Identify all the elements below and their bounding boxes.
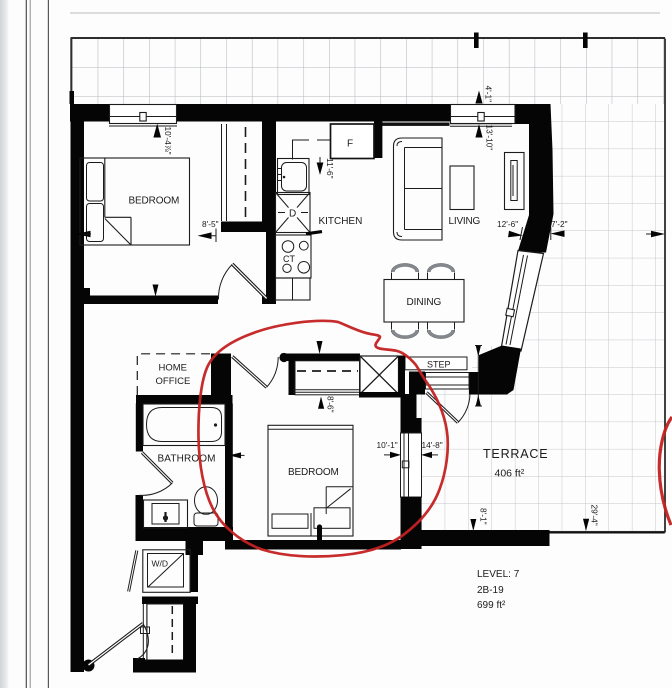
svg-text:CT: CT — [283, 254, 295, 264]
svg-text:HOME: HOME — [159, 363, 188, 374]
svg-text:699 ft²: 699 ft² — [477, 600, 506, 611]
svg-text:14'-8": 14'-8" — [422, 440, 443, 450]
svg-text:STEP: STEP — [427, 360, 451, 370]
svg-text:OFFICE: OFFICE — [156, 376, 191, 387]
svg-text:2B-19: 2B-19 — [477, 585, 504, 596]
svg-text:BATHROOM: BATHROOM — [158, 454, 216, 465]
svg-text:13'-10": 13'-10" — [485, 125, 495, 151]
svg-text:8'-6": 8'-6" — [326, 396, 336, 413]
svg-text:29'-4": 29'-4" — [590, 505, 600, 526]
svg-text:10'-4⅞": 10'-4⅞" — [163, 127, 173, 155]
svg-text:BEDROOM: BEDROOM — [288, 467, 339, 478]
svg-text:D: D — [289, 209, 296, 220]
svg-text:10'-1": 10'-1" — [377, 440, 398, 450]
svg-text:BEDROOM: BEDROOM — [129, 196, 180, 207]
svg-text:11'-6": 11'-6" — [325, 158, 335, 179]
svg-text:F: F — [347, 139, 353, 150]
svg-text:W/D: W/D — [152, 559, 169, 569]
svg-text:406 ft²: 406 ft² — [495, 468, 525, 480]
svg-text:8'-1": 8'-1" — [479, 508, 489, 525]
svg-text:KITCHEN: KITCHEN — [319, 216, 363, 227]
svg-text:LIVING: LIVING — [449, 216, 481, 227]
svg-text:TERRACE: TERRACE — [483, 447, 548, 461]
svg-text:DINING: DINING — [407, 297, 442, 308]
svg-text:8'-5": 8'-5" — [202, 219, 219, 229]
svg-text:LEVEL: 7: LEVEL: 7 — [477, 569, 520, 580]
svg-text:7'-2": 7'-2" — [551, 219, 568, 229]
svg-text:12'-6": 12'-6" — [497, 219, 518, 229]
svg-text:4'-1": 4'-1" — [484, 86, 494, 103]
